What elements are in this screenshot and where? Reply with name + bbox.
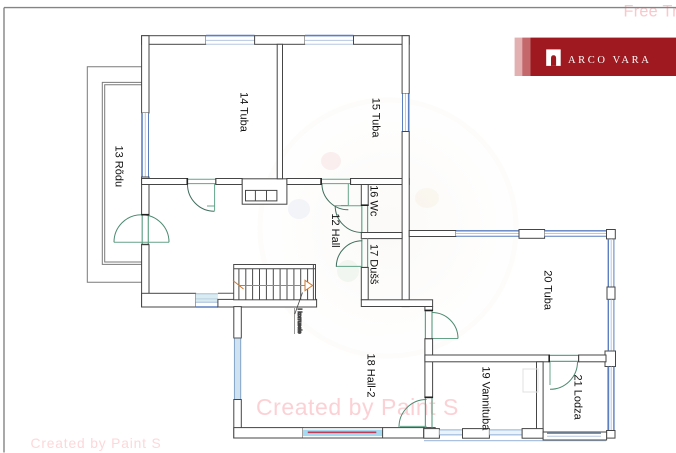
svg-text:Free Trial: Free Trial [624, 2, 676, 20]
svg-text:18 Hall-2: 18 Hall-2 [365, 353, 377, 397]
svg-text:21 Lodza: 21 Lodza [571, 374, 583, 420]
svg-text:15 Tuba: 15 Tuba [370, 98, 382, 139]
svg-text:I korrusele: I korrusele [296, 308, 302, 333]
svg-text:20 Tuba: 20 Tuba [541, 270, 553, 311]
svg-text:13 Rõdu: 13 Rõdu [112, 146, 124, 188]
svg-text:ARCO VARA: ARCO VARA [568, 55, 651, 66]
svg-text:14 Tuba: 14 Tuba [238, 92, 250, 133]
svg-text:12 Hall: 12 Hall [329, 213, 341, 247]
svg-text:16 Wc: 16 Wc [368, 185, 380, 217]
svg-text:Created by Paint S: Created by Paint S [31, 436, 162, 451]
svg-text:19 Vannituba: 19 Vannituba [479, 366, 491, 431]
svg-text:17 Dušš: 17 Dušš [368, 244, 380, 285]
